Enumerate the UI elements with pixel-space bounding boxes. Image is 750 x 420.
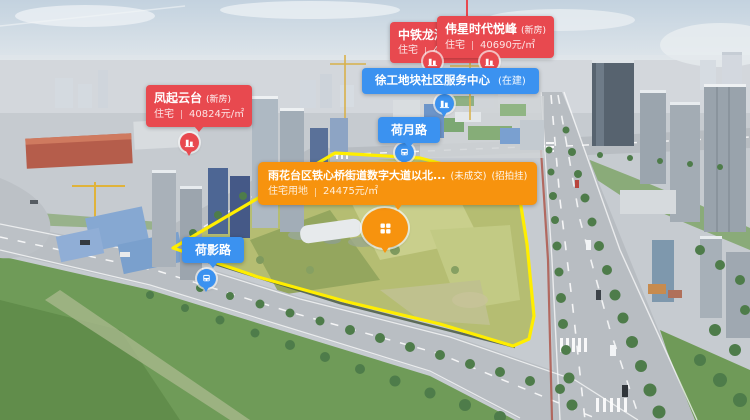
facility-title: 徐工地块社区服务中心 <box>375 73 490 87</box>
map-viewport[interactable]: 中铁龙湖· 住宅 4 伟星时代悦峰 (新房) 住宅 40690元/㎡ 徐工地块社… <box>0 0 750 420</box>
building-icon <box>439 98 450 109</box>
pin-stem <box>466 0 468 17</box>
road-label-heyue[interactable]: 荷月路 <box>378 117 440 143</box>
parcel-listing-type: (招拍挂) <box>491 171 527 182</box>
facility-label-xugong[interactable]: 徐工地块社区服务中心 (在建) <box>362 68 539 94</box>
listing-category: 住宅 <box>154 109 174 121</box>
divider <box>181 110 182 119</box>
listing-price: 40824元/㎡ <box>189 109 244 121</box>
listing-category: 住宅 <box>398 45 418 57</box>
bus-icon <box>399 147 410 158</box>
pin-road-heying[interactable] <box>197 269 216 288</box>
listing-price: 40690元/㎡ <box>480 40 535 52</box>
road-name: 荷月路 <box>391 123 427 137</box>
pin-fengqi[interactable] <box>180 133 199 152</box>
building-icon <box>427 56 438 67</box>
divider <box>315 188 316 197</box>
building-icon <box>184 137 195 148</box>
listing-title: 伟星时代悦峰 <box>445 22 517 36</box>
building-icon <box>484 56 495 67</box>
road-name: 荷影路 <box>195 243 231 257</box>
land-parcel-label[interactable]: 雨花台区铁心桥街道数字大道以北... (未成交) (招拍挂) 住宅用地 2447… <box>258 162 537 205</box>
pin-xugong[interactable] <box>435 94 454 113</box>
bus-icon <box>201 273 212 284</box>
parcel-status: (未成交) <box>451 171 487 182</box>
parcel-title: 雨花台区铁心桥街道数字大道以北... <box>268 169 446 182</box>
pin-land-parcel[interactable] <box>362 208 408 248</box>
listing-tag: (新房) <box>521 26 546 37</box>
divider <box>472 41 473 50</box>
listing-title: 凤起云台 <box>154 91 202 105</box>
listing-label-fengqi[interactable]: 凤起云台 (新房) 住宅 40824元/㎡ <box>146 85 252 127</box>
road-label-heying[interactable]: 荷影路 <box>182 237 244 263</box>
facility-tag: (在建) <box>498 76 526 87</box>
parcel-category: 住宅用地 <box>268 186 308 198</box>
listing-tag: (新房) <box>206 95 231 106</box>
land-parcel-icon <box>378 221 393 236</box>
listing-label-weixing[interactable]: 伟星时代悦峰 (新房) 住宅 40690元/㎡ <box>437 16 554 58</box>
listing-category: 住宅 <box>445 40 465 52</box>
parcel-price: 24475元/㎡ <box>323 186 378 198</box>
